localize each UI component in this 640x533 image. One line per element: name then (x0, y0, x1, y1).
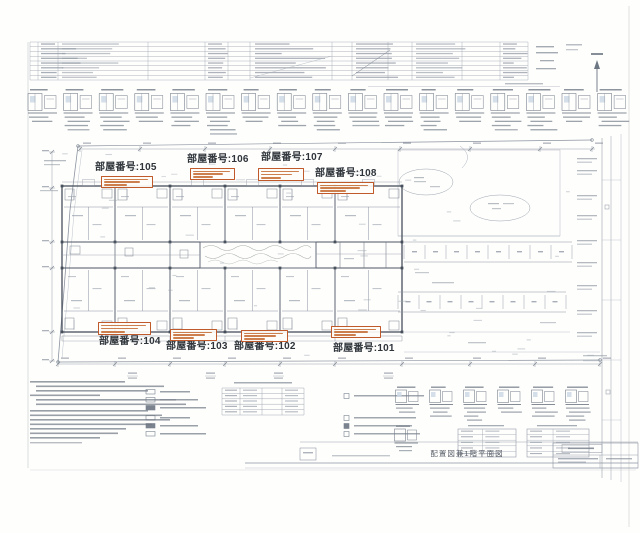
drawing-sheet: 配置図兼1階平面図 部屋番号:105部屋番号:106部屋番号:107部屋番号:1… (0, 0, 640, 533)
room-number-label: 部屋番号:103 (166, 342, 228, 352)
spec-table (30, 42, 582, 80)
room-annotation-box (241, 330, 288, 342)
room-annotation-box (331, 326, 381, 338)
room-number-label: 部屋番号:101 (333, 344, 395, 354)
room-number-label: 部屋番号:102 (234, 342, 296, 352)
room-annotation-box (170, 329, 217, 341)
drawing-title: 配置図兼1階平面図 (402, 450, 532, 458)
room-annotation-box (190, 168, 235, 180)
legend-block (146, 382, 424, 437)
floor-plan-drawing (0, 0, 640, 533)
room-number-label: 部屋番号:106 (187, 155, 249, 165)
parking-area (398, 242, 600, 352)
room-annotation-box (98, 322, 151, 335)
building-plan (61, 180, 404, 342)
room-annotation-box (317, 182, 374, 194)
unit-schematic-row-bottom (395, 387, 591, 458)
room-annotation-box (258, 168, 304, 181)
room-number-label: 部屋番号:105 (95, 163, 157, 173)
room-number-label: 部屋番号:107 (261, 153, 323, 163)
street-right (577, 134, 621, 482)
scanned-drawing-page: { "sheet": { "title": "配置図兼1階平面図" }, "ro… (0, 0, 640, 533)
north-arrow-icon (591, 53, 603, 92)
sheet-frame (28, 6, 636, 527)
room-annotation-box (101, 176, 153, 188)
unit-schematic-row-top (28, 83, 629, 135)
room-number-label: 部屋番号:108 (315, 169, 377, 179)
room-number-label: 部屋番号:104 (99, 337, 161, 347)
